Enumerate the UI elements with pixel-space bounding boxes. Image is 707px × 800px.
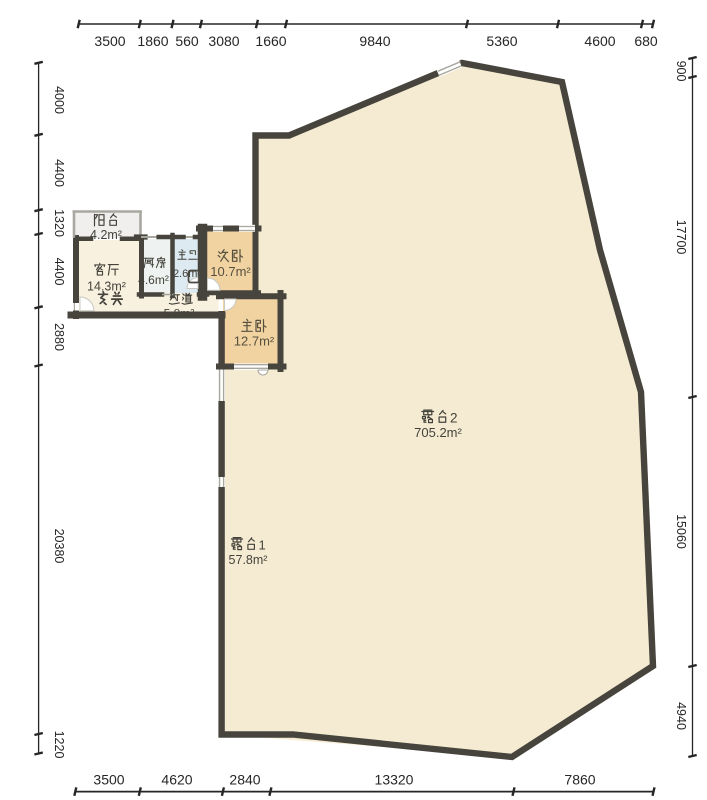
svg-text:4400: 4400 (52, 159, 66, 187)
svg-text:900: 900 (674, 61, 688, 82)
svg-text:4620: 4620 (161, 772, 192, 788)
svg-text:57.8m²: 57.8m² (229, 553, 268, 567)
svg-text:17700: 17700 (674, 220, 688, 255)
svg-text:3080: 3080 (208, 33, 239, 49)
svg-text:5360: 5360 (486, 33, 517, 49)
svg-text:4400: 4400 (52, 258, 66, 286)
svg-text:4.2m²: 4.2m² (90, 228, 122, 242)
svg-text:2840: 2840 (229, 772, 260, 788)
svg-text:560: 560 (175, 33, 199, 49)
svg-text:9840: 9840 (359, 33, 390, 49)
svg-text:1: 1 (259, 538, 266, 553)
svg-text:10.7m²: 10.7m² (210, 264, 251, 279)
svg-text:3500: 3500 (94, 33, 125, 49)
svg-text:4000: 4000 (52, 86, 66, 114)
svg-text:12.7m²: 12.7m² (234, 334, 275, 349)
svg-text:5.8m²: 5.8m² (164, 307, 195, 321)
svg-text:7860: 7860 (564, 772, 595, 788)
svg-text:3500: 3500 (93, 772, 124, 788)
svg-text:1220: 1220 (52, 731, 66, 759)
svg-text:13320: 13320 (375, 772, 414, 788)
svg-text:14.3m²: 14.3m² (87, 280, 126, 294)
svg-text:680: 680 (634, 33, 658, 49)
svg-text:2880: 2880 (52, 323, 66, 351)
svg-text:4600: 4600 (584, 33, 615, 49)
svg-text:1320: 1320 (52, 209, 66, 237)
svg-text:20380: 20380 (52, 529, 66, 564)
svg-text:4.6m²: 4.6m² (138, 273, 169, 287)
svg-text:2: 2 (450, 411, 458, 426)
svg-text:1860: 1860 (137, 33, 168, 49)
svg-text:705.2m²: 705.2m² (414, 425, 462, 440)
svg-text:15060: 15060 (674, 514, 688, 549)
svg-text:4940: 4940 (674, 702, 688, 730)
svg-text:1660: 1660 (255, 33, 286, 49)
